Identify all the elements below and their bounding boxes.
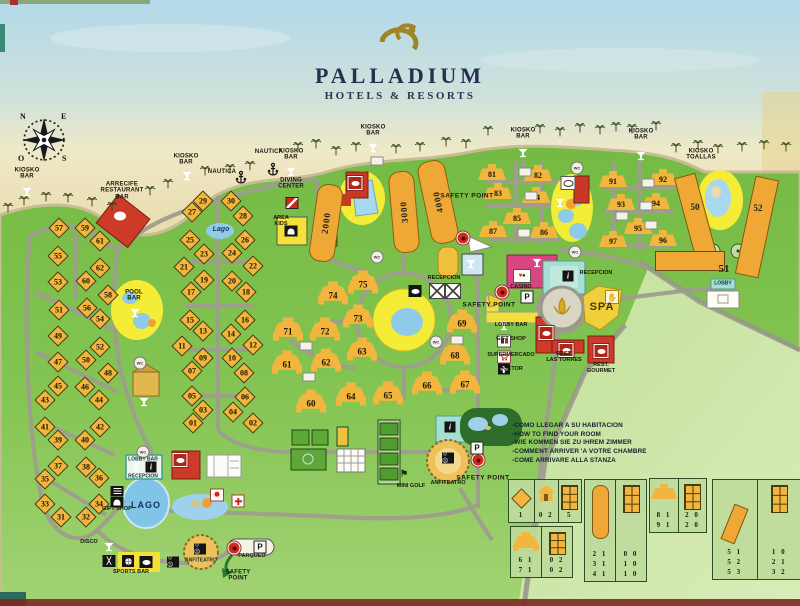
building-trapezoid: 86 (530, 222, 558, 238)
masks-icon: ☺☹ (167, 557, 179, 568)
map-label: NAUTICA (208, 169, 236, 175)
map-label: KIOSKO BAR (629, 129, 654, 142)
chip-icon (300, 342, 313, 351)
xbox-icon (445, 283, 461, 299)
legend-cell-slant: 5 1 5 2 5 3 (713, 480, 757, 579)
building-diamond: 07 (182, 361, 203, 382)
palm-icon (144, 184, 156, 196)
building-diamond: 24 (222, 243, 243, 264)
map-label: KIOSKO BAR (15, 168, 40, 181)
building-bell: 64 (336, 383, 366, 406)
building-diamond: 44 (89, 390, 110, 411)
building-diamond: 27 (182, 202, 203, 223)
legend-cell-grid: 2 0 2 0 (678, 479, 706, 532)
palm-icon (330, 144, 342, 156)
building-diamond: 23 (194, 244, 215, 265)
building-trapezoid: 96 (649, 230, 677, 246)
building-bell: 65 (373, 382, 403, 405)
building-diamond: 51 (49, 300, 70, 321)
martini-icon (103, 541, 115, 553)
building-bell: 67 (450, 371, 480, 394)
legend-cell-trap: 8 1 9 1 (650, 479, 678, 532)
building-diamond: 21 (174, 257, 195, 278)
sportX-icon: ╳ (103, 555, 116, 567)
golf-icon: ⚑ (400, 469, 408, 480)
map-label: 51 (719, 264, 730, 276)
compass-rose: N E O S (14, 112, 74, 166)
wc-icon: WC (134, 357, 147, 370)
map-label: RECEPCION (428, 276, 461, 282)
palm-icon (440, 135, 452, 147)
palm-icon (610, 120, 622, 132)
legend-panel: 10 25 (508, 479, 582, 523)
map-label: MINI GOLF (397, 484, 425, 490)
building-diamond: 61 (90, 231, 111, 252)
legend-cell-tower: 2 1 3 1 4 1 (585, 480, 615, 581)
map-label: LAGO (131, 501, 161, 511)
map-label: DOCTOR (499, 367, 523, 373)
building-diamond: 55 (48, 246, 69, 267)
map-label: PARQUEO (238, 554, 265, 560)
wc-icon: WC (569, 246, 582, 259)
restR-icon (594, 344, 609, 358)
building-diamond: 17 (181, 282, 202, 303)
map-label: 50 (691, 203, 700, 213)
map-label: GIFT SHOP (496, 337, 526, 343)
building-diamond: 39 (48, 430, 69, 451)
map-label: SPA (590, 302, 615, 314)
legend-numbers: 0 2 0 2 (550, 555, 565, 575)
anchor-icon (266, 163, 281, 178)
building-trapezoid: 87 (479, 221, 507, 237)
building-trapezoid: 81 (478, 164, 506, 180)
building-diamond: 58 (98, 285, 119, 306)
map-label: Lago (213, 226, 230, 234)
building-bell: 68 (440, 342, 470, 365)
resort-map: PALLADIUM HOTELS & RESORTS N E O S 57596… (0, 0, 800, 606)
legend-shape-grid (561, 485, 578, 510)
palm-icon (482, 124, 494, 136)
legend-panel: 2 1 3 1 4 10 0 1 0 1 0 (584, 479, 647, 582)
legend-numbers: 0 0 1 0 1 0 (624, 549, 639, 579)
legend-shape-diamond (511, 488, 531, 508)
building-diamond: 48 (98, 363, 119, 384)
legend-numbers: 6 1 7 1 (519, 555, 534, 575)
palm-icon (594, 123, 606, 135)
chip-icon (303, 373, 316, 382)
legend-numbers: 2 1 3 1 4 1 (593, 549, 608, 579)
palm-icon (736, 140, 748, 152)
martini-icon (367, 142, 379, 154)
legend-numbers: 0 2 (539, 510, 554, 520)
legend-cell-house: 0 2 (534, 480, 558, 522)
building-diamond: 49 (48, 326, 69, 347)
legend-shape-slant (721, 503, 749, 544)
building-diamond: 11 (172, 336, 193, 357)
map-label: KIOSKO BAR (511, 128, 536, 141)
building-slanted (735, 176, 779, 279)
building-bell: 71 (273, 318, 303, 341)
legend-shape-bell (513, 532, 539, 551)
info-icon: i (445, 422, 456, 433)
dot-icon (457, 232, 470, 245)
palm-icon (86, 195, 98, 207)
building-diamond: 57 (49, 218, 70, 239)
map-label: ANFITEATRO (430, 481, 465, 487)
building-diamond: 22 (243, 256, 264, 277)
building-bell: 60 (296, 390, 326, 413)
palm-icon (780, 140, 792, 152)
martini-icon (130, 461, 142, 473)
wc-icon: WC (430, 336, 443, 349)
building-diamond: 04 (223, 402, 244, 423)
legend-shape-grid (623, 485, 640, 513)
map-label: LOBBY BAR (495, 323, 528, 329)
palm-icon (162, 177, 174, 189)
building-trapezoid: 91 (599, 171, 627, 187)
map-label: SAFETY POINT (440, 192, 493, 199)
xbox-icon (429, 283, 445, 299)
palm-icon (310, 137, 322, 149)
map-label: RECEPCION (580, 271, 613, 277)
chip-icon (518, 229, 531, 238)
legend-shape-grid (684, 484, 701, 510)
map-label: ARRECIFE RESTAURANT BAR (101, 181, 144, 200)
compass-e: E (61, 112, 66, 121)
legend-cell-diamond: 1 (509, 480, 534, 522)
crossR-icon (232, 495, 245, 508)
building-diamond: 14 (221, 324, 242, 345)
map-label: AREA KIDS (273, 216, 289, 228)
legend-panel: 5 1 5 2 5 31 0 2 1 3 2 (712, 479, 800, 580)
ball-icon (122, 555, 134, 567)
building-bell: 72 (310, 318, 340, 341)
palm-icon (534, 122, 546, 134)
palm-icon (40, 190, 52, 202)
building-diamond: 40 (75, 430, 96, 451)
martini-icon (181, 170, 193, 182)
map-label: KIOSKO TOALLAS (686, 149, 716, 162)
chip-icon (616, 212, 629, 221)
map-label: KIOSKO BAR (174, 154, 199, 167)
map-label: 52 (754, 204, 763, 214)
building-bell: 62 (311, 349, 341, 372)
howto-line: -COMMENT ARRIVER 'A VOTRE CHAMBRE (512, 448, 682, 457)
map-label: SAFETY POINT (226, 570, 251, 583)
building-diamond: 02 (243, 413, 264, 434)
info-icon: i (563, 271, 574, 282)
map-label: CASINO (510, 285, 531, 291)
P-icon: P (254, 541, 267, 554)
legend-panel: 8 1 9 12 0 2 0 (649, 478, 707, 533)
rest-icon (140, 556, 153, 568)
building-trapezoid: 93 (607, 194, 635, 210)
map-label: NAUTICA (255, 149, 283, 155)
wc-icon: WC (571, 162, 584, 175)
martini-icon (531, 257, 543, 269)
map-label: ANFITEATRO (185, 558, 217, 563)
building-bell: 63 (347, 338, 377, 361)
palm-icon (758, 138, 770, 150)
P-icon: P (521, 291, 534, 304)
legend-cell-bell: 6 1 7 1 (511, 527, 541, 577)
palm-icon (554, 125, 566, 137)
building-diamond: 47 (48, 352, 69, 373)
martini-icon (554, 197, 566, 209)
chip-icon (525, 192, 538, 201)
building-diamond: 01 (183, 413, 204, 434)
rest-icon (409, 285, 422, 297)
restR-icon (173, 453, 188, 467)
building-diamond: 28 (233, 206, 254, 227)
compass-s: S (62, 154, 66, 163)
chip-icon (519, 168, 532, 177)
wc-icon: WC (371, 251, 384, 264)
martini-icon (517, 147, 529, 159)
legend-cell-grid: 0 2 0 2 (541, 527, 572, 577)
martini-icon (635, 150, 647, 162)
gear-icon: ✸ (210, 489, 224, 502)
map-label: SAFETY POINT (456, 474, 509, 481)
building-diamond: 32 (76, 507, 97, 528)
map-label: KIOSKO BAR (361, 125, 386, 138)
building-diamond: 53 (48, 272, 69, 293)
martini-icon (465, 258, 477, 270)
masks-icon: ☺☹ (442, 453, 454, 464)
restR-icon (539, 326, 554, 340)
legend-shape-trap (651, 484, 677, 499)
building-diamond: 54 (90, 309, 111, 330)
building-bell: 69 (447, 310, 477, 333)
palm-icon (350, 140, 362, 152)
palm-icon (62, 191, 74, 203)
flag-icon (286, 197, 299, 209)
building-bell: 75 (348, 271, 378, 294)
palm-icon (574, 121, 586, 133)
building-diamond: 12 (243, 335, 264, 356)
map-label: RECEPCION (128, 474, 158, 479)
building-trapezoid: 97 (599, 231, 627, 247)
building-diamond: 13 (193, 321, 214, 342)
building-diamond: 31 (51, 507, 72, 528)
dot-icon (472, 454, 485, 467)
map-label: DIVING CENTER (278, 178, 304, 191)
howto-line: -HOW TO FIND YOUR ROOM (512, 431, 682, 440)
compass-o: O (18, 154, 24, 163)
building-bell: 74 (318, 282, 348, 305)
building-diamond: 50 (76, 350, 97, 371)
building-diamond: 35 (35, 469, 56, 490)
building-bell: 61 (272, 351, 302, 374)
map-label: REST. LAS TORRES (546, 352, 581, 364)
legend-panel: 6 1 7 10 2 0 2 (510, 526, 573, 578)
martini-icon (285, 166, 297, 178)
martini-icon (129, 307, 141, 319)
howto-text-block: -COMO LLEGAR A SU HABITACION-HOW TO FIND… (512, 422, 682, 465)
compass-n: N (20, 112, 26, 121)
palm-icon (106, 200, 118, 212)
masks-icon: ☺☹ (194, 544, 206, 555)
chip-icon (451, 336, 464, 345)
legend-cell-grid: 5 (558, 480, 582, 522)
building-bell: 66 (412, 372, 442, 395)
palm-icon (460, 137, 472, 149)
building-diamond: 18 (236, 282, 257, 303)
building-diamond: 43 (35, 390, 56, 411)
map-label: LOBBY BAR (128, 457, 158, 462)
map-label: SUPERMERCADO (487, 353, 534, 359)
map-label: SAFETY POINT (462, 301, 515, 308)
map-label: DISCO (80, 540, 97, 546)
legend-shape-grid (771, 485, 788, 513)
legend-shape-house (537, 485, 555, 501)
building-51-block (655, 251, 725, 271)
restR-icon (348, 176, 363, 190)
legend-shape-tower (592, 485, 609, 539)
building-tower: 2000 (308, 183, 345, 264)
martini-icon (138, 396, 150, 408)
palm-icon (390, 142, 402, 154)
cards-icon: ♥♠ (513, 269, 531, 283)
palm-icon (414, 140, 426, 152)
legend-numbers: 1 0 2 1 3 2 (772, 547, 787, 577)
building-diamond: 08 (234, 363, 255, 384)
legend-numbers: 5 1 5 2 5 3 (727, 547, 742, 577)
palm-icon (670, 141, 682, 153)
map-label: POOL BAR (125, 290, 143, 303)
chip-icon (642, 179, 655, 188)
restW-icon (561, 176, 576, 190)
palm-icon (2, 201, 14, 213)
chip-icon (645, 221, 658, 230)
info-icon: i (146, 462, 157, 473)
howto-line: -WIE KOMMEN SIE ZU IHREM ZIMMER (512, 439, 682, 448)
map-label: REST. GOURMET (587, 363, 615, 375)
legend-cell-grid: 1 0 2 1 3 2 (757, 480, 800, 579)
map-label: LOBBY (714, 281, 732, 286)
building-diamond: 36 (89, 468, 110, 489)
building-bell: 73 (343, 305, 373, 328)
legend-numbers: 5 (567, 510, 573, 520)
map-label: GIFT SHOP (102, 507, 132, 513)
howto-line: -COMO LLEGAR A SU HABITACION (512, 422, 682, 431)
map-label: SPORTS BAR (113, 570, 149, 576)
legend-cell-grid: 0 0 1 0 1 0 (615, 480, 646, 581)
P-icon: P (471, 442, 484, 455)
legend-numbers: 2 0 2 0 (685, 510, 700, 530)
legend-numbers: 8 1 9 1 (657, 510, 672, 530)
palm-icon (18, 194, 30, 206)
burger-icon (111, 486, 124, 496)
dot-icon (496, 286, 509, 299)
chip-icon (371, 157, 384, 166)
building-tower: 4000 (416, 158, 461, 246)
building-diamond: 60 (76, 271, 97, 292)
legend-numbers: 1 (519, 510, 525, 520)
legend-shape-grid (549, 532, 566, 555)
howto-line: -COME ARRIVARE ALLA STANZA (512, 457, 682, 466)
chip-icon (640, 202, 653, 211)
building-trapezoid: 85 (503, 208, 531, 224)
palm-icon (244, 159, 256, 171)
